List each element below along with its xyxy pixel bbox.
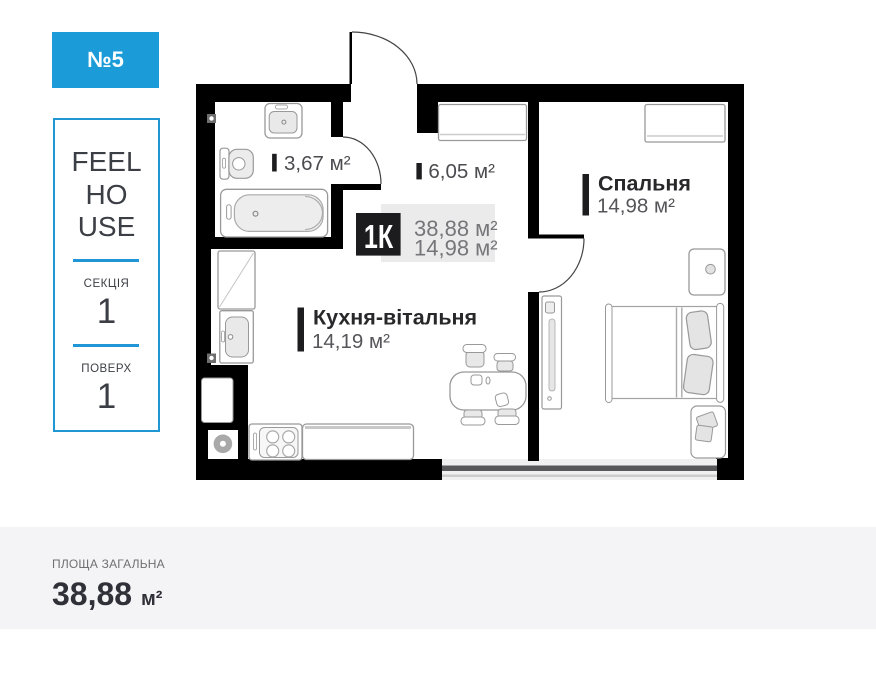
svg-text:1К: 1К	[364, 219, 394, 256]
svg-text:3,67 м²: 3,67 м²	[284, 152, 351, 175]
svg-text:14,19 м²: 14,19 м²	[312, 330, 390, 353]
svg-text:14,98 м²: 14,98 м²	[597, 195, 675, 218]
svg-text:14,98 м²: 14,98 м²	[414, 236, 498, 261]
svg-text:Спальня: Спальня	[598, 172, 691, 196]
svg-text:6,05 м²: 6,05 м²	[428, 160, 495, 183]
svg-text:Кухня-вітальня: Кухня-вітальня	[313, 306, 477, 330]
